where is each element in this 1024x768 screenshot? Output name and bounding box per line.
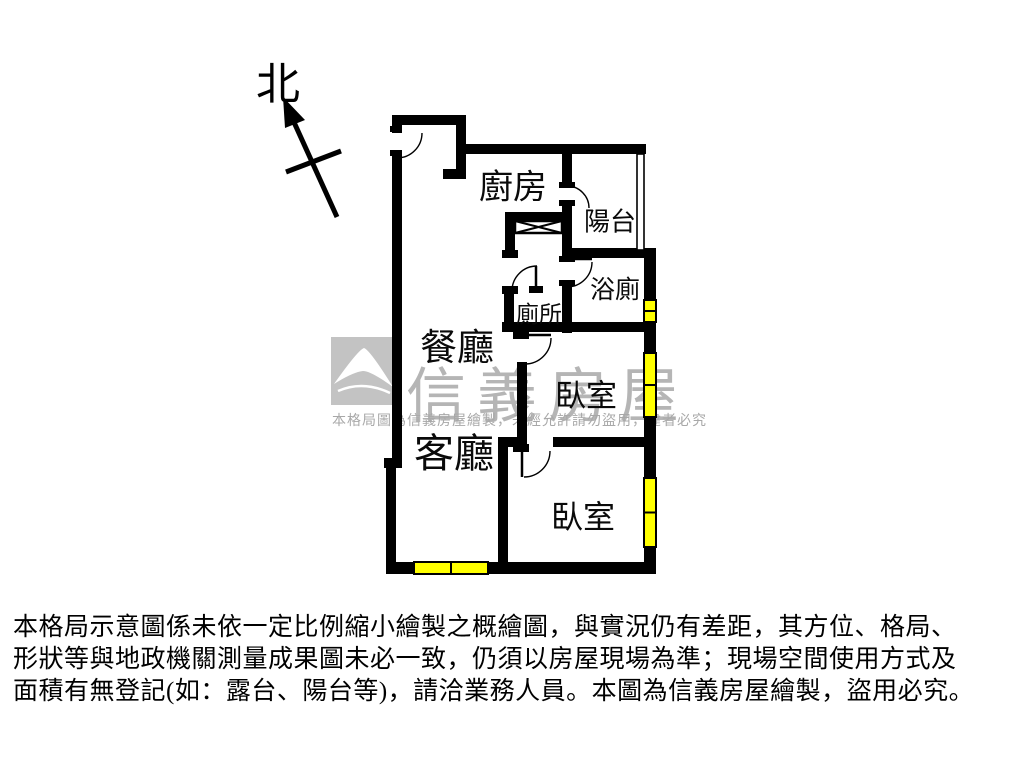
door-arc-icon [525, 338, 551, 364]
room-label-kitchen: 廚房 [479, 160, 547, 209]
disclaimer-line-1: 本格局示意圖係未依一定比例縮小繪製之概繪圖，與實況仍有差距，其方位、格局、 [13, 612, 1013, 644]
room-label-bathroom: 浴廁 [590, 270, 640, 306]
north-arrow-icon [283, 97, 341, 217]
room-label-living-room: 客廳 [414, 421, 494, 479]
floorplan-page: 北 信義房屋 本格局圖為信義房屋繪製，未經允許請勿盜用，違者必究 廚房陽台浴廁廁… [0, 0, 1024, 768]
disclaimer-line-2: 形狀等與地政機關測量成果圖未必一致，仍須以房屋現場為準；現場空間使用方式及 [13, 644, 1013, 676]
room-label-bedroom-2: 臥室 [551, 492, 615, 538]
room-label-toilet: 廁所 [516, 295, 562, 329]
north-label: 北 [256, 48, 300, 112]
balcony-railing [637, 154, 644, 250]
door-arc-icon [524, 451, 550, 477]
room-label-bedroom-1: 臥室 [555, 371, 617, 416]
disclaimer-text: 本格局示意圖係未依一定比例縮小繪製之概繪圖，與實況仍有差距，其方位、格局、 形狀… [13, 612, 1013, 708]
room-label-dining-room: 餐廳 [420, 317, 494, 371]
kitchen-fixture-icon [515, 221, 562, 233]
room-label-balcony: 陽台 [584, 202, 636, 239]
disclaimer-line-3: 面積有無登記(如：露台、陽台等)，請洽業務人員。本圖為信義房屋繪製，盜用必究。 [13, 676, 1013, 708]
